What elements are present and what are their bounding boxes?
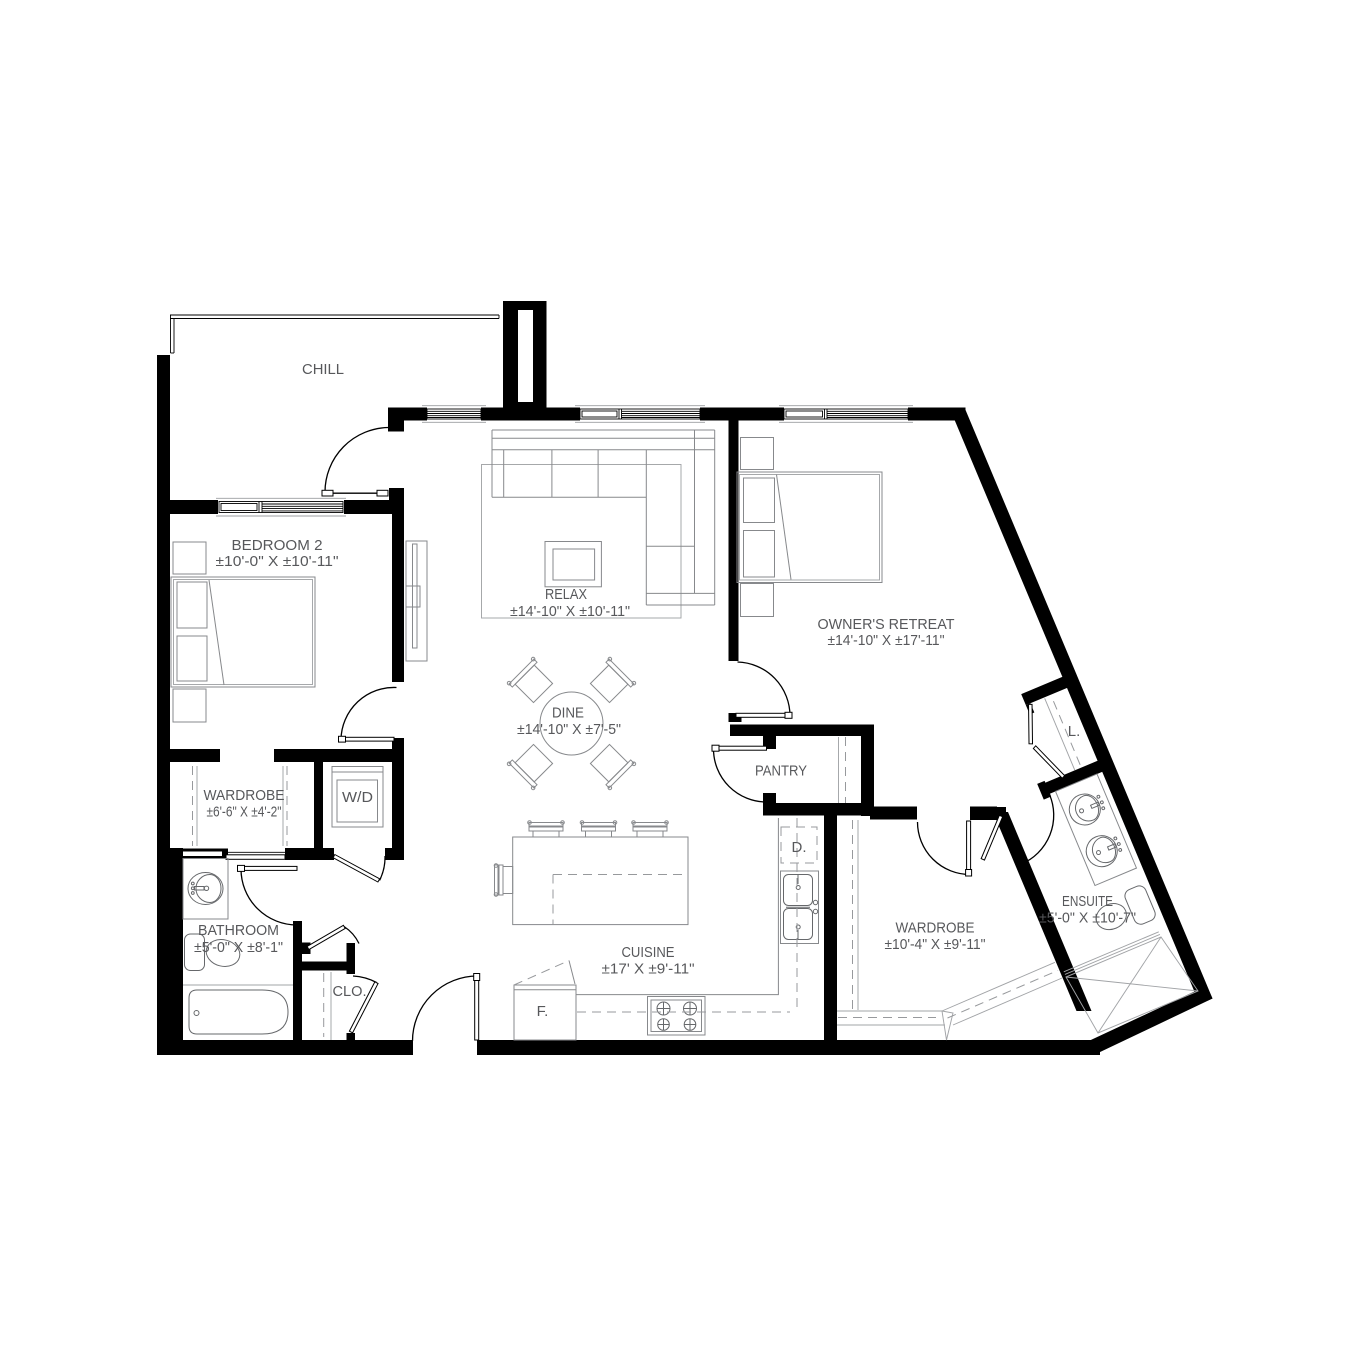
svg-text:±5'-0" X ±8'-1": ±5'-0" X ±8'-1" — [194, 939, 283, 956]
svg-text:±10'-4" X ±9'-11": ±10'-4" X ±9'-11" — [885, 936, 986, 953]
svg-text:RELAX: RELAX — [545, 586, 587, 603]
svg-text:W/D: W/D — [342, 789, 373, 806]
svg-text:PANTRY: PANTRY — [755, 763, 807, 780]
svg-text:±10'-0" X ±10'-11": ±10'-0" X ±10'-11" — [216, 553, 339, 570]
svg-text:±14'-10" X ±7'-5": ±14'-10" X ±7'-5" — [517, 721, 621, 738]
svg-text:CLO.: CLO. — [333, 983, 367, 1000]
svg-text:F.: F. — [537, 1003, 549, 1020]
svg-text:OWNER'S RETREAT: OWNER'S RETREAT — [818, 616, 955, 633]
svg-text:ENSUITE: ENSUITE — [1062, 893, 1113, 910]
svg-text:±5'-0" X ±10'-7": ±5'-0" X ±10'-7" — [1039, 910, 1136, 927]
svg-text:±6'-6" X ±4'-2": ±6'-6" X ±4'-2" — [207, 804, 282, 821]
svg-text:BEDROOM 2: BEDROOM 2 — [232, 537, 323, 554]
svg-text:±14'-10" X ±17'-11": ±14'-10" X ±17'-11" — [828, 632, 945, 649]
svg-text:±17' X ±9'-11": ±17' X ±9'-11" — [602, 961, 695, 978]
svg-text:CHILL: CHILL — [302, 361, 344, 378]
svg-text:WARDROBE: WARDROBE — [204, 787, 285, 804]
svg-text:±14'-10" X ±10'-11": ±14'-10" X ±10'-11" — [510, 603, 630, 620]
svg-text:CUISINE: CUISINE — [622, 944, 675, 961]
svg-text:DINE: DINE — [552, 705, 584, 722]
svg-text:WARDROBE: WARDROBE — [896, 920, 975, 937]
svg-text:BATHROOM: BATHROOM — [198, 922, 279, 939]
svg-text:L.: L. — [1068, 723, 1081, 740]
svg-text:D.: D. — [792, 839, 807, 856]
